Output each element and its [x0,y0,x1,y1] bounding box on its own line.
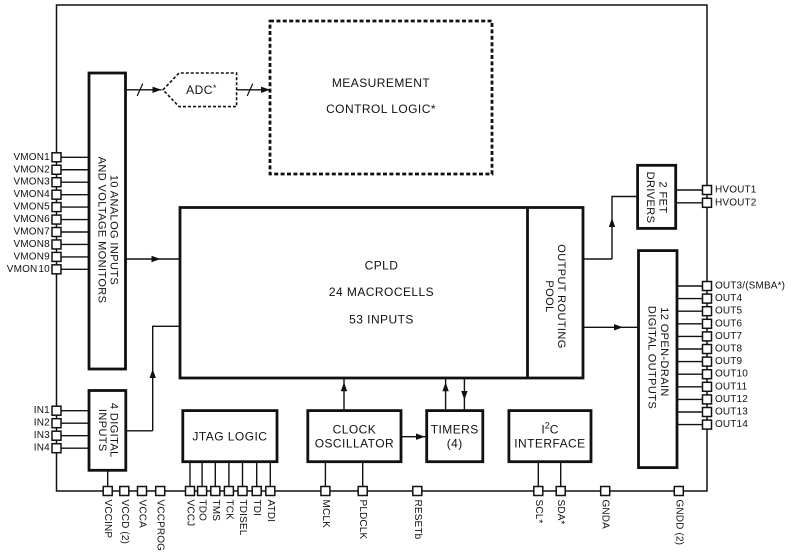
svg-text:IN3: IN3 [34,430,50,441]
svg-text:CPLD: CPLD [365,259,399,273]
svg-text:VMON3: VMON3 [13,177,50,188]
svg-text:I2C: I2C [541,421,558,437]
svg-text:SDA*: SDA* [555,500,566,525]
svg-text:TDISEL: TDISEL [237,500,248,536]
svg-text:ATDI: ATDI [265,500,276,523]
svg-text:ADC*: ADC* [186,83,217,97]
svg-text:VCCA: VCCA [137,500,148,529]
svg-text:VMON1: VMON1 [13,152,50,163]
svg-text:OUTPUT ROUTING: OUTPUT ROUTING [555,244,567,348]
svg-text:VMON6: VMON6 [13,214,50,225]
svg-text:TIMERS: TIMERS [431,423,479,437]
svg-text:VCCPROG: VCCPROG [155,500,166,552]
svg-text:INPUTS: INPUTS [96,409,108,452]
svg-text:VCCINP: VCCINP [102,500,113,539]
svg-text:DIGITAL OUTPUTS: DIGITAL OUTPUTS [646,306,658,409]
svg-text:DRIVERS: DRIVERS [644,172,656,224]
svg-text:POOL: POOL [543,280,555,312]
svg-text:OUT9: OUT9 [715,356,743,367]
svg-text:SCL*: SCL* [533,500,544,524]
svg-text:4 DIGITAL: 4 DIGITAL [108,403,120,458]
svg-text:VMON8: VMON8 [13,239,50,250]
svg-text:VMON9: VMON9 [13,251,50,262]
svg-text:OUT14: OUT14 [715,419,748,430]
svg-text:(4): (4) [447,437,463,451]
svg-text:OUT5: OUT5 [715,306,743,317]
svg-text:VMON 10: VMON 10 [7,264,50,275]
svg-text:GNDA: GNDA [600,500,611,530]
svg-text:IN4: IN4 [34,443,50,454]
svg-text:VCCJ: VCCJ [185,500,196,527]
svg-text:GNDD (2): GNDD (2) [673,500,684,546]
svg-text:HVOUT2: HVOUT2 [715,197,757,208]
svg-text:OUT8: OUT8 [715,344,743,355]
svg-text:VCCD (2): VCCD (2) [119,500,130,545]
svg-text:OUT12: OUT12 [715,394,748,405]
svg-text:VMON5: VMON5 [13,202,50,213]
svg-text:MCLK: MCLK [320,500,331,529]
svg-text:12 OPEN-DRAIN: 12 OPEN-DRAIN [658,307,670,397]
svg-text:53 INPUTS: 53 INPUTS [349,313,414,327]
svg-text:MEASUREMENT: MEASUREMENT [332,76,431,90]
svg-text:TMS: TMS [210,500,221,522]
svg-text:OUT4: OUT4 [715,293,743,304]
svg-text:JTAG LOGIC: JTAG LOGIC [192,429,267,443]
svg-text:TDI: TDI [251,500,262,517]
svg-text:OUT7: OUT7 [715,331,743,342]
svg-text:TCK: TCK [223,500,234,521]
svg-text:OUT6: OUT6 [715,318,743,329]
svg-text:24 MACROCELLS: 24 MACROCELLS [329,285,434,299]
svg-text:OSCILLATOR: OSCILLATOR [315,437,394,451]
svg-text:CONTROL LOGIC*: CONTROL LOGIC* [326,102,436,116]
svg-text:IN1: IN1 [34,405,50,416]
svg-text:VMON4: VMON4 [13,189,50,200]
svg-text:10 ANALOG INPUTS: 10 ANALOG INPUTS [108,175,120,285]
svg-text:OUT10: OUT10 [715,369,748,380]
svg-text:IN2: IN2 [34,418,50,429]
svg-text:HVOUT1: HVOUT1 [715,185,757,196]
svg-text:AND VOLTAGE MONITORS: AND VOLTAGE MONITORS [96,157,108,304]
svg-text:2 FET: 2 FET [657,182,669,214]
svg-text:CLOCK: CLOCK [333,423,377,437]
svg-text:INTERFACE: INTERFACE [514,437,585,451]
svg-text:VMON7: VMON7 [13,227,50,238]
svg-text:VMON2: VMON2 [13,164,50,175]
svg-text:RESETb: RESETb [412,500,423,540]
svg-text:PLDCLK: PLDCLK [357,500,368,540]
svg-text:OUT11: OUT11 [715,381,748,392]
svg-text:OUT3/(SMBA*): OUT3/(SMBA*) [715,281,785,292]
svg-text:TDO: TDO [197,500,208,522]
svg-text:OUT13: OUT13 [715,407,748,418]
